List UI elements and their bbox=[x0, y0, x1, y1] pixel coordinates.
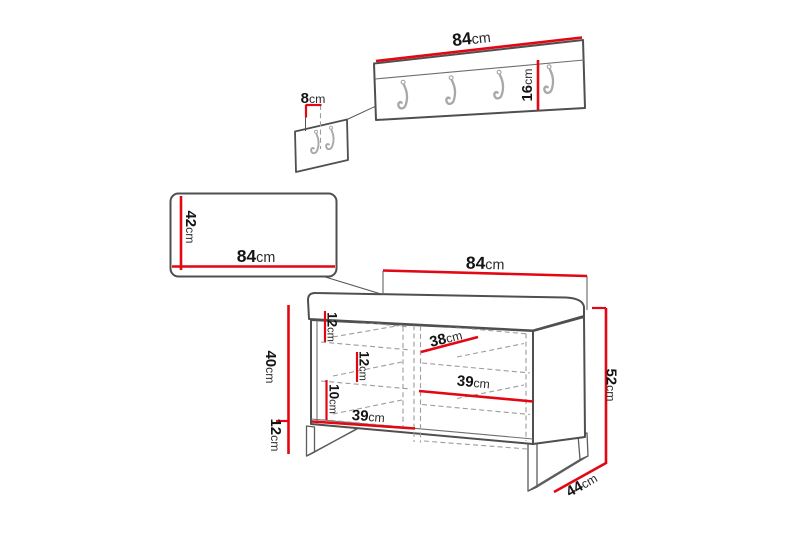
bench-front-face bbox=[311, 320, 533, 444]
dim-panel-height-label: 42cm bbox=[182, 210, 199, 243]
dim-rack-depth-label: 8cm bbox=[301, 90, 326, 107]
seat-panel: 42cm 84cm bbox=[171, 194, 395, 299]
dim-inner-gap-top-label: 12cm bbox=[325, 312, 340, 342]
dim-bench-body-height-label: 40cm bbox=[262, 350, 279, 383]
storage-bench: 84cm 52cm 44cm 40cm 12cm 12cm 12cm 10cm … bbox=[262, 253, 620, 501]
dim-bench-total-height-label: 52cm bbox=[603, 368, 620, 401]
coat-rack-side-view: 8cm bbox=[295, 90, 348, 172]
bench-front-left-leg bbox=[307, 426, 315, 456]
dim-bench-leg-height-label: 12cm bbox=[267, 418, 284, 451]
diagram-canvas: 84cm 16cm 8cm 42cm 84cm bbox=[0, 0, 800, 533]
dim-inner-gap-bottom-label: 10cm bbox=[327, 384, 342, 414]
bench-side-face bbox=[533, 317, 585, 444]
dim-bench-depth-label: 44cm bbox=[563, 469, 600, 500]
side-view-panel bbox=[295, 120, 348, 173]
dim-rack-width-label: 84cm bbox=[451, 26, 492, 50]
dim-bench-width-label: 84cm bbox=[466, 253, 505, 274]
coat-rack: 84cm 16cm bbox=[347, 26, 585, 120]
furniture-dimension-diagram: 84cm 16cm 8cm 42cm 84cm bbox=[0, 0, 800, 533]
dim-inner-gap-middle-label: 12cm bbox=[357, 351, 372, 381]
dim-rack-height-label: 16cm bbox=[519, 68, 536, 101]
